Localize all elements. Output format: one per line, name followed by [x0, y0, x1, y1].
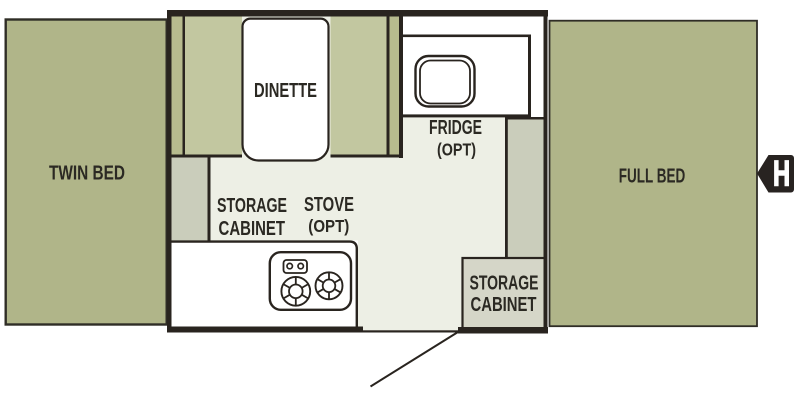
svg-text:STORAGE: STORAGE: [470, 273, 539, 295]
svg-text:STOVE: STOVE: [304, 194, 354, 216]
svg-text:CABINET: CABINET: [219, 218, 286, 240]
svg-text:(OPT): (OPT): [437, 139, 476, 159]
svg-text:CABINET: CABINET: [471, 294, 537, 316]
svg-text:(OPT): (OPT): [308, 216, 349, 236]
svg-text:DINETTE: DINETTE: [254, 80, 317, 102]
svg-text:STORAGE: STORAGE: [217, 195, 287, 217]
svg-text:TWIN BED: TWIN BED: [49, 162, 125, 184]
svg-text:FRIDGE: FRIDGE: [429, 117, 482, 139]
svg-text:FULL BED: FULL BED: [619, 166, 686, 188]
